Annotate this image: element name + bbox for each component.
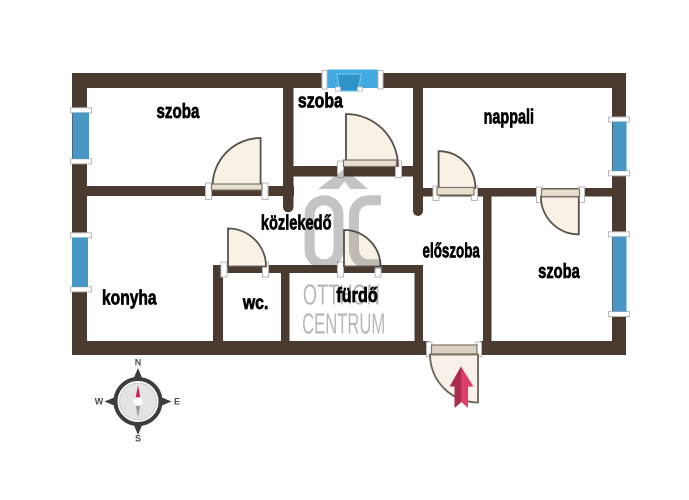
svg-text:N: N xyxy=(135,358,142,368)
svg-text:nappali: nappali xyxy=(484,107,534,129)
svg-text:előszoba: előszoba xyxy=(423,241,481,263)
svg-text:E: E xyxy=(174,397,180,407)
svg-text:szoba: szoba xyxy=(538,261,580,283)
svg-text:konyha: konyha xyxy=(102,288,157,310)
svg-text:S: S xyxy=(135,434,141,444)
svg-text:közlekedő: közlekedő xyxy=(261,212,332,234)
svg-text:CENTRUM: CENTRUM xyxy=(302,309,385,341)
svg-text:szoba: szoba xyxy=(298,91,344,113)
svg-text:W: W xyxy=(95,397,104,407)
svg-text:fürdő: fürdő xyxy=(336,285,378,307)
svg-text:wc.: wc. xyxy=(242,293,268,314)
svg-text:szoba: szoba xyxy=(157,101,201,123)
